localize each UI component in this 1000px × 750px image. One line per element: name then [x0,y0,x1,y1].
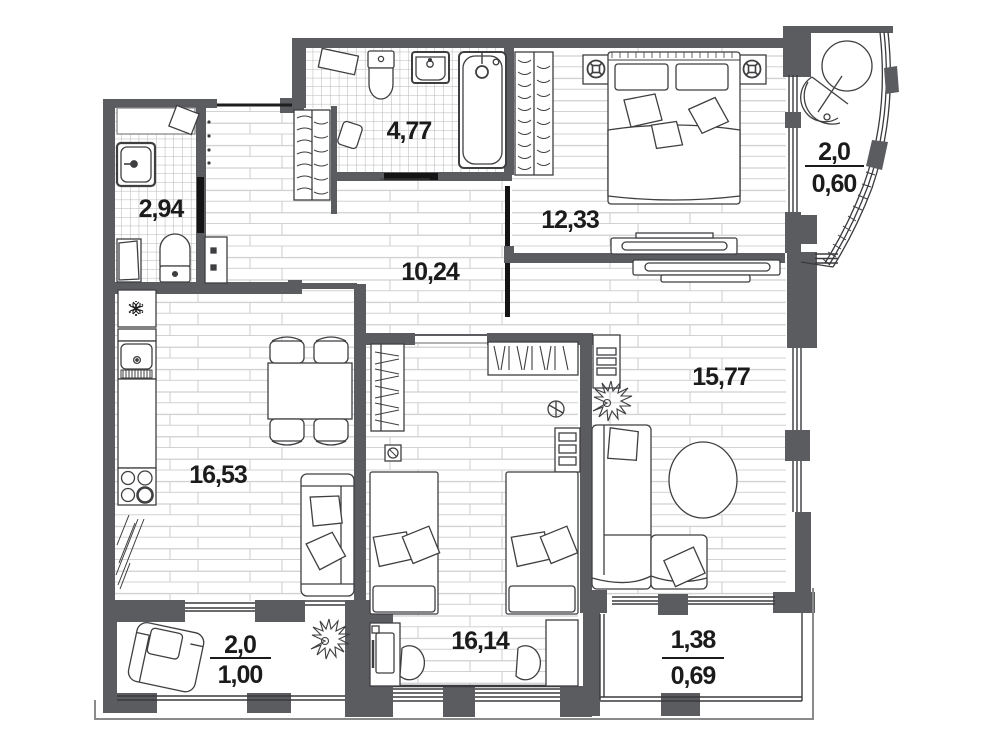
svg-text:16,53: 16,53 [189,461,247,489]
svg-text:2,0: 2,0 [224,631,256,659]
svg-text:12,33: 12,33 [541,206,599,234]
svg-text:1,00: 1,00 [218,661,263,689]
svg-text:0,60: 0,60 [812,170,857,198]
svg-text:1,38: 1,38 [671,626,717,654]
svg-text:4,77: 4,77 [387,117,432,145]
svg-text:16,14: 16,14 [451,627,510,655]
svg-text:2,94: 2,94 [139,195,185,223]
svg-text:0,69: 0,69 [671,662,716,690]
svg-text:10,24: 10,24 [401,258,460,286]
svg-text:15,77: 15,77 [692,363,750,391]
svg-text:2,0: 2,0 [818,138,850,166]
